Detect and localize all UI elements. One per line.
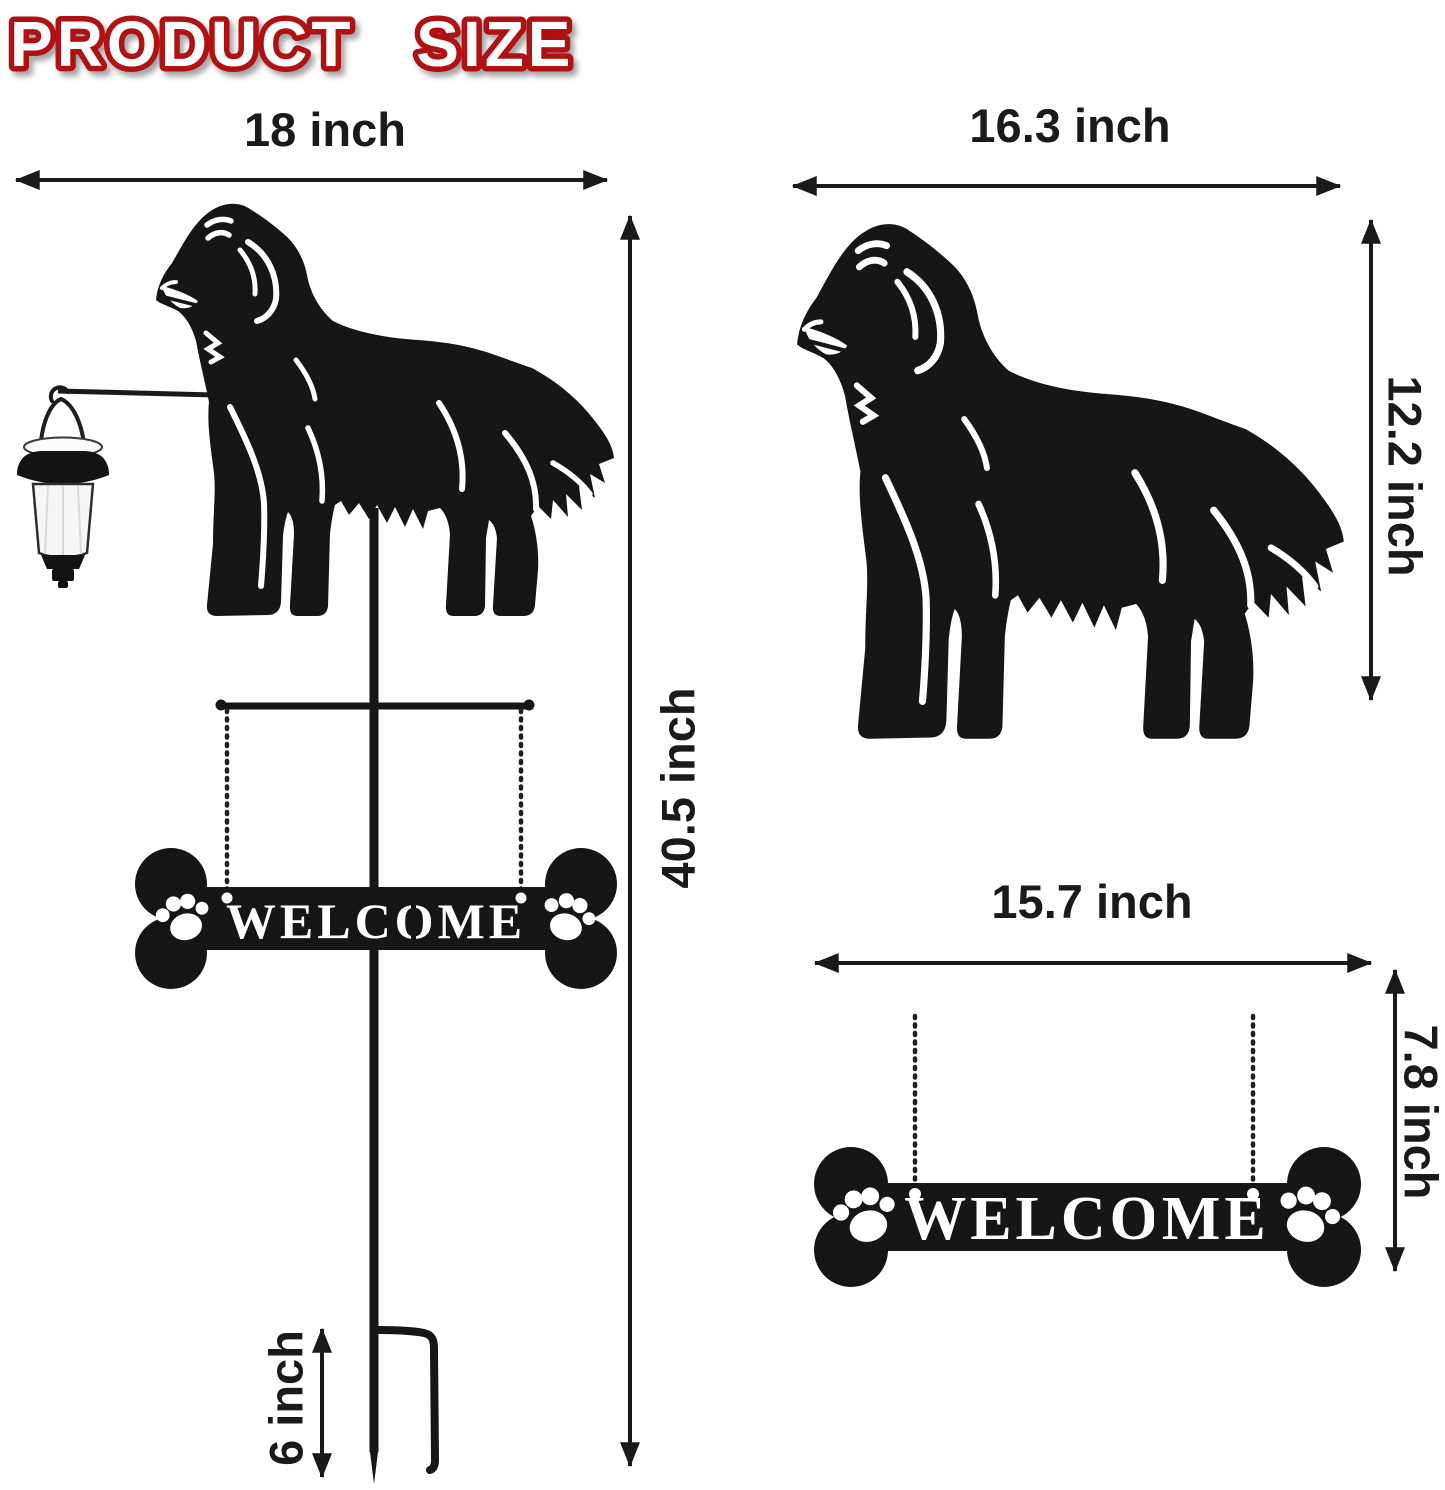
welcome-sign-detail: WELCOME (814, 1016, 1361, 1287)
dim-dog-width: 16.3 inch (793, 99, 1340, 186)
diagram-scene: PRODUCT SIZE 18 inch 40.5 inch 6 inch 16… (0, 0, 1445, 1490)
dim-label-dog-height: 12.2 inch (1379, 375, 1432, 576)
chain-hole (909, 1188, 921, 1200)
dim-label-total-height: 40.5 inch (652, 687, 705, 888)
dog-silhouette-icon (797, 224, 1344, 739)
chain-hole (516, 893, 527, 904)
welcome-sign-text: WELCOME (904, 1185, 1270, 1253)
chain-hole (222, 893, 233, 904)
dim-label-dog-width: 16.3 inch (969, 99, 1170, 152)
chain-hole (1247, 1188, 1259, 1200)
stake-pole (370, 508, 436, 1484)
dim-stake-depth: 6 inch (260, 1329, 323, 1477)
dog-silhouette-icon (156, 204, 614, 616)
dim-total-width: 18 inch (16, 103, 607, 180)
dim-label-sign-height: 7.8 inch (1395, 1024, 1445, 1199)
product-size-diagram: PRODUCT SIZE 18 inch 40.5 inch 6 inch 16… (0, 0, 1445, 1490)
stencil-bar (1154, 1193, 1160, 1239)
dim-sign-height: 7.8 inch (1395, 970, 1445, 1271)
welcome-sign-text: WELCOME (226, 893, 526, 949)
page-title-text: PRODUCT SIZE (10, 8, 574, 80)
dim-label-stake-depth: 6 inch (260, 1330, 313, 1466)
page-title: PRODUCT SIZE (10, 8, 574, 80)
dim-sign-width: 15.7 inch (815, 875, 1371, 963)
dim-dog-height: 12.2 inch (1371, 220, 1432, 700)
stencil-bar (411, 900, 416, 940)
lantern-arm (51, 387, 215, 401)
stake-prong (377, 1330, 435, 1470)
dim-label-sign-width: 15.7 inch (991, 875, 1192, 928)
dim-label-total-width: 18 inch (244, 103, 406, 156)
garden-stake-product: WELCOME (17, 204, 617, 1484)
dim-total-height: 40.5 inch (630, 216, 705, 1466)
lantern-icon (17, 399, 109, 588)
